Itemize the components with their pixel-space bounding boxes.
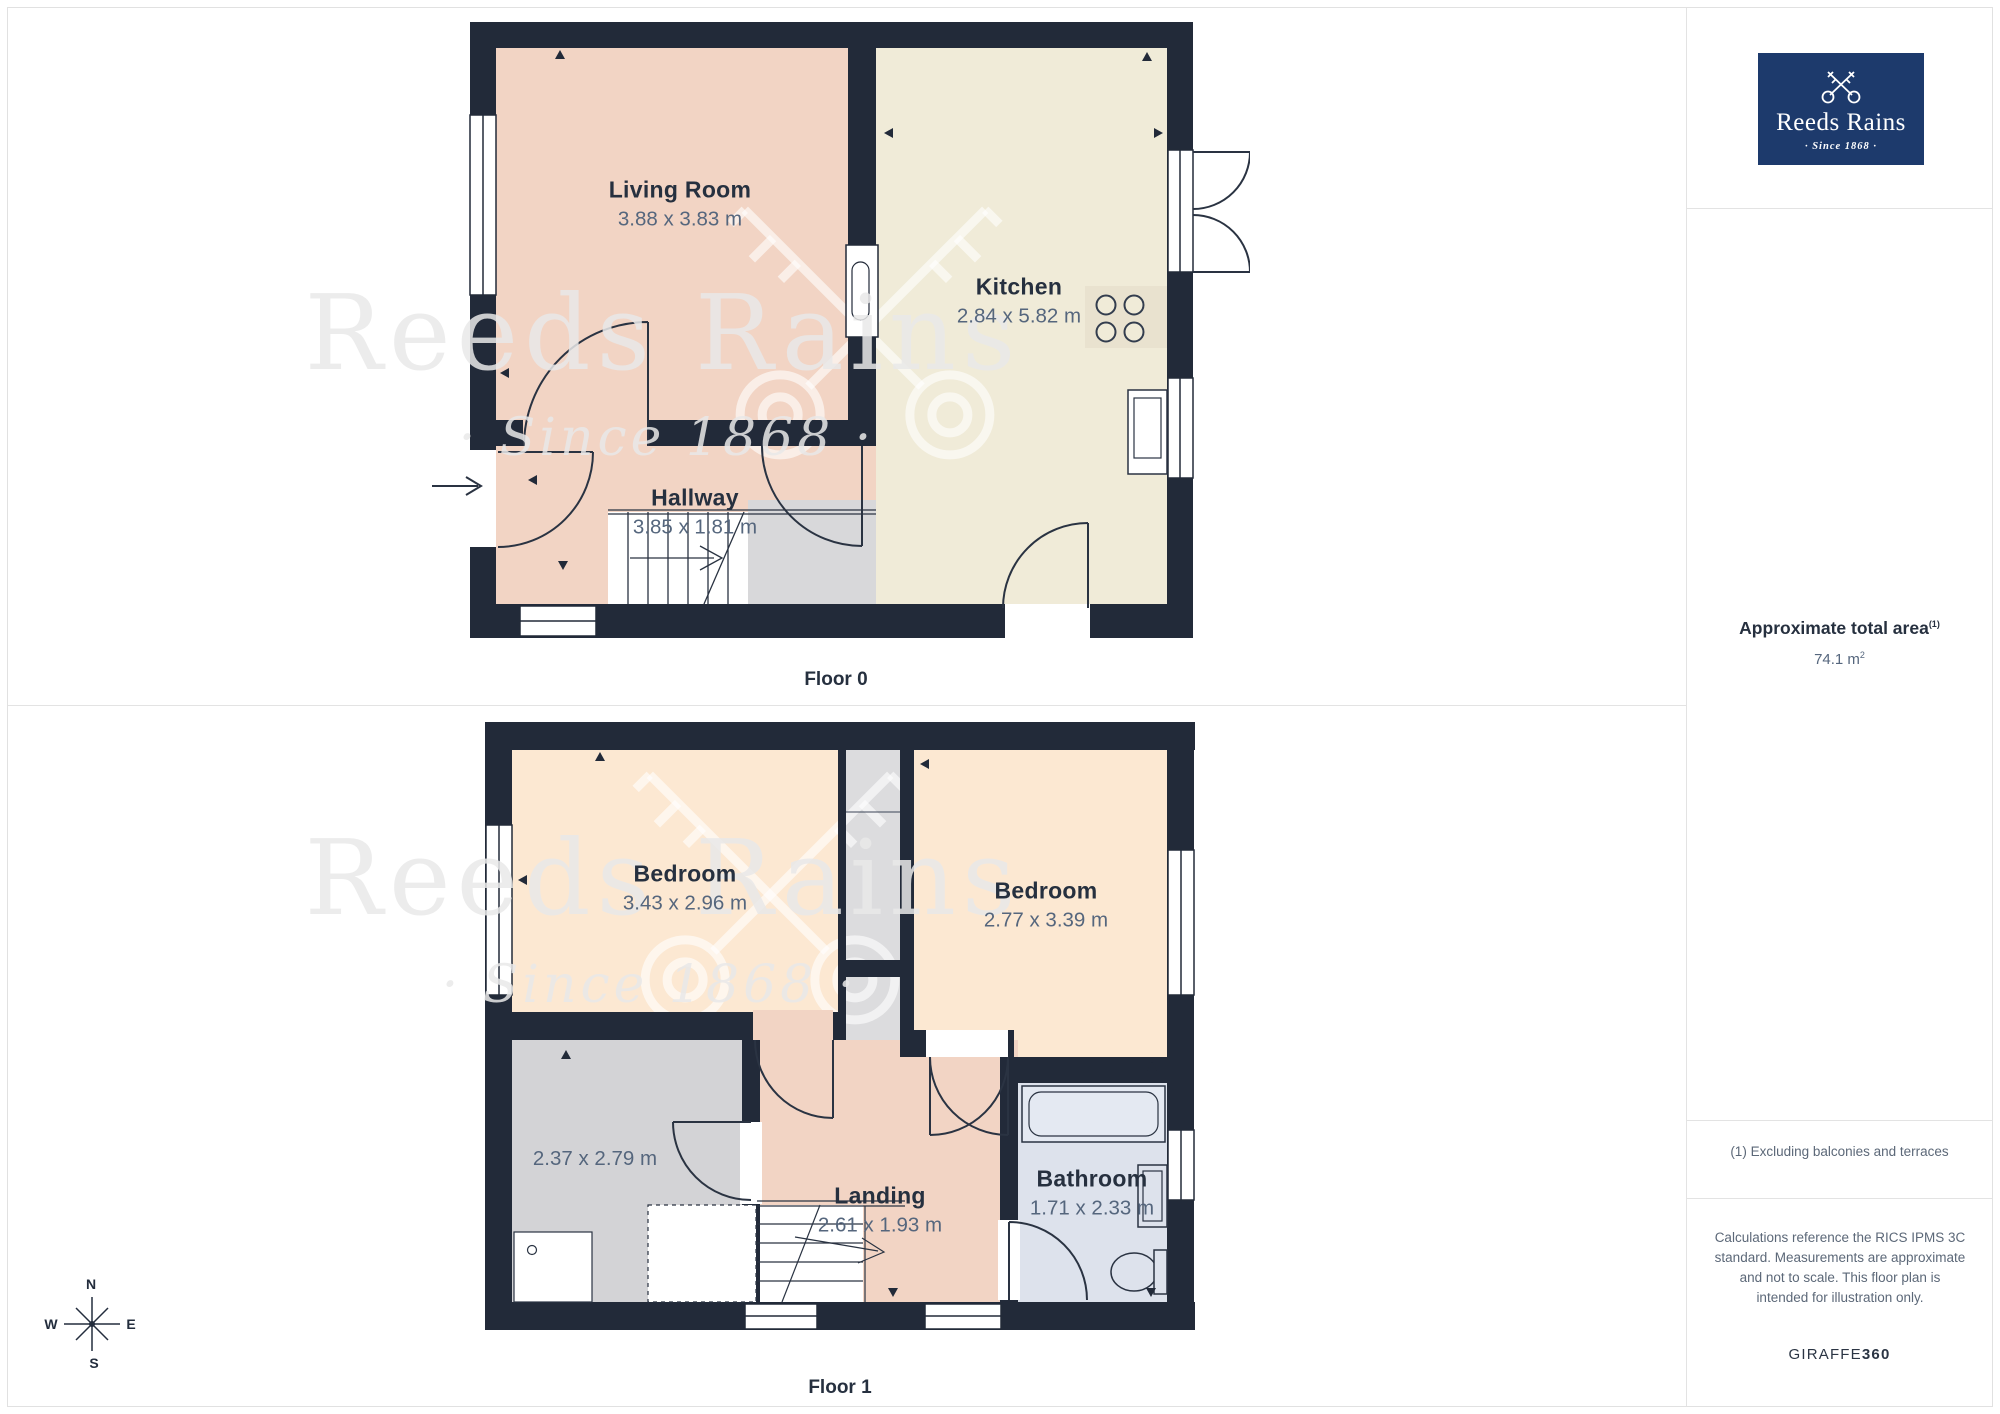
floorplan-page: Reeds Rains · Since 1868 · Reeds Rains ·… xyxy=(0,0,2000,1414)
stove-icon xyxy=(1085,286,1167,348)
logo-tagline: · Since 1868 · xyxy=(1805,141,1877,152)
room-name: Landing xyxy=(818,1183,942,1210)
sidebar-section-divider xyxy=(1687,208,1992,209)
floor0-caption: Floor 0 xyxy=(804,669,867,691)
sidebar-section-divider xyxy=(1687,1198,1992,1199)
room-label-kitchen: Kitchen 2.84 x 5.82 m xyxy=(957,274,1081,329)
wardrobe-dashed-outline xyxy=(648,1205,756,1302)
credit-bold: 360 xyxy=(1862,1346,1891,1363)
sidebar-section-divider xyxy=(1687,1120,1992,1121)
room-dimensions: 2.77 x 3.39 m xyxy=(984,909,1108,933)
room-label-living-room: Living Room 3.88 x 3.83 m xyxy=(609,177,752,232)
credit-normal: GIRAFFE xyxy=(1788,1346,1861,1363)
floor1-plan xyxy=(455,700,1215,1360)
room-name: Bedroom xyxy=(984,878,1108,905)
room-dimensions: 2.61 x 1.93 m xyxy=(818,1214,942,1238)
room-dimensions: 1.71 x 2.33 m xyxy=(1030,1197,1154,1221)
room-name: Bedroom xyxy=(623,861,747,888)
room-name: Bathroom xyxy=(1030,1166,1154,1193)
compass-east-label: E xyxy=(126,1316,135,1332)
total-area-value: 74.1 m2 xyxy=(1687,650,1992,668)
room-name: Kitchen xyxy=(957,274,1081,301)
info-sidebar: Reeds Rains · Since 1868 · Approximate t… xyxy=(1687,8,1992,1406)
compass-north-label: N xyxy=(86,1276,96,1292)
reeds-rains-logo: Reeds Rains · Since 1868 · xyxy=(1758,53,1924,165)
compass-south-label: S xyxy=(89,1355,98,1371)
room-dimensions: 3.88 x 3.83 m xyxy=(609,208,752,232)
compass-icon: N S W E xyxy=(37,1269,147,1379)
disclaimer-text: Calculations reference the RICS IPMS 3C … xyxy=(1714,1228,1966,1307)
total-area-label: Approximate total area(1) xyxy=(1687,618,1992,639)
room-dimensions: 3.85 x 1.81 m xyxy=(633,516,757,540)
room-label-store: 2.37 x 2.79 m xyxy=(533,1143,657,1171)
room-name: Living Room xyxy=(609,177,752,204)
total-area-footnote-ref: (1) xyxy=(1929,619,1940,629)
shower-tray-icon xyxy=(514,1232,592,1302)
total-area-value-text: 74.1 m xyxy=(1814,651,1860,668)
total-area-label-text: Approximate total area xyxy=(1739,618,1929,638)
room-dimensions: 2.37 x 2.79 m xyxy=(533,1147,657,1171)
room-label-landing: Landing 2.61 x 1.93 m xyxy=(818,1183,942,1238)
floor1-caption: Floor 1 xyxy=(808,1377,871,1399)
room-label-bathroom: Bathroom 1.71 x 2.33 m xyxy=(1030,1166,1154,1221)
room-name: Hallway xyxy=(633,485,757,512)
logo-title: Reeds Rains xyxy=(1776,109,1906,137)
bathtub-icon xyxy=(1022,1086,1165,1142)
floor0-plan xyxy=(420,10,1250,670)
room-dimensions: 2.84 x 5.82 m xyxy=(957,305,1081,329)
footnote-text: (1) Excluding balconies and terraces xyxy=(1697,1144,1982,1159)
room-label-bedroom-right: Bedroom 2.77 x 3.39 m xyxy=(984,878,1108,933)
sink-icon xyxy=(1128,390,1167,474)
total-area-block: Approximate total area(1) 74.1 m2 xyxy=(1687,618,1992,668)
compass-west-label: W xyxy=(44,1316,58,1332)
total-area-value-sup: 2 xyxy=(1860,650,1865,660)
giraffe360-credit: GIRAFFE360 xyxy=(1687,1346,1992,1363)
room-dimensions: 3.43 x 2.96 m xyxy=(623,892,747,916)
room-label-hallway: Hallway 3.85 x 1.81 m xyxy=(633,485,757,540)
crossed-keys-icon xyxy=(1818,67,1864,107)
toilet-icon xyxy=(1111,1250,1167,1294)
room-label-bedroom-left: Bedroom 3.43 x 2.96 m xyxy=(623,861,747,916)
